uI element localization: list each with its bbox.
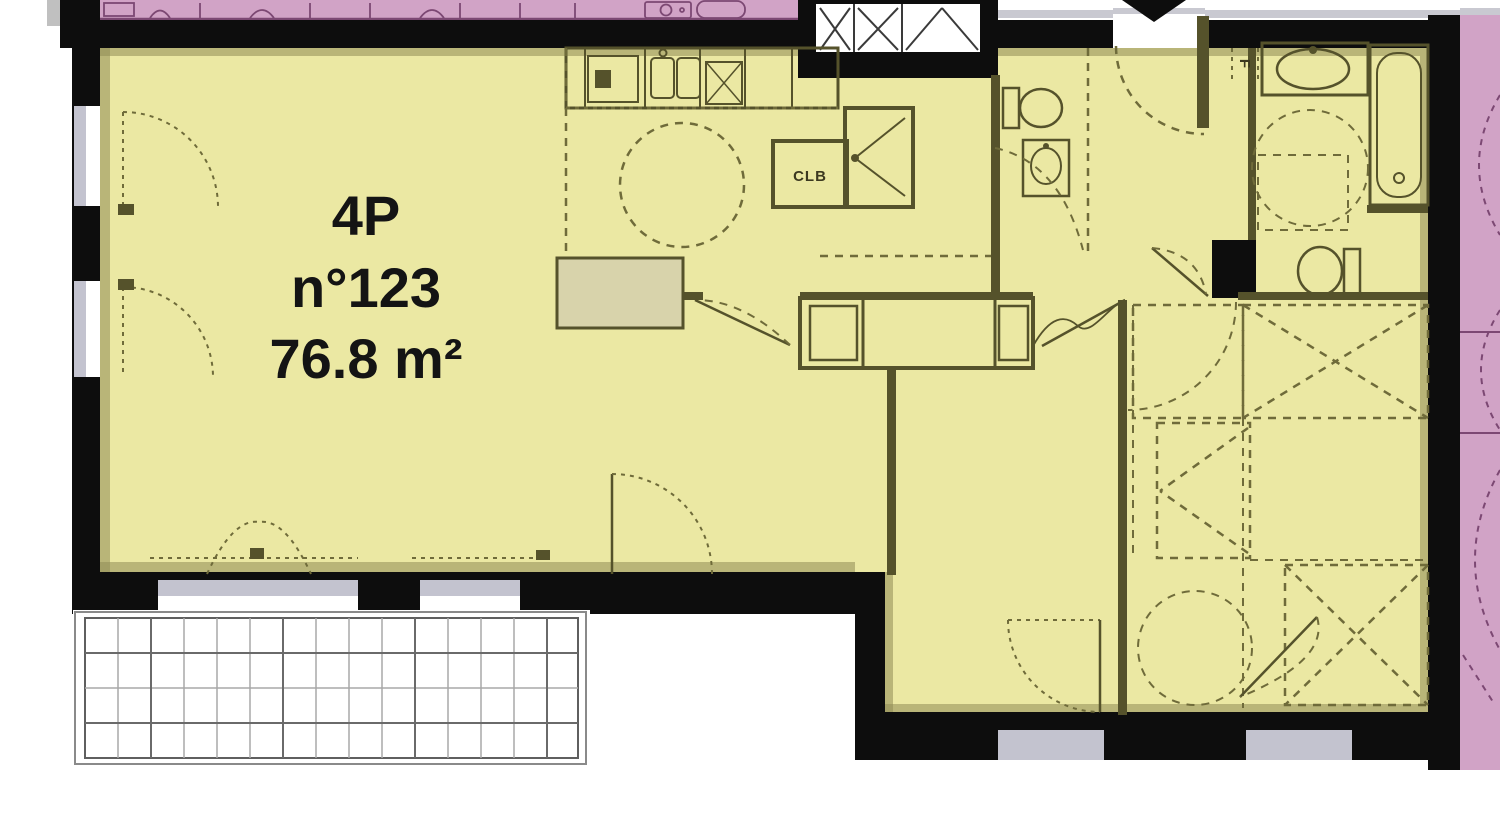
- entrance-door-leaf: [1197, 16, 1209, 128]
- wall-bedroom-mid: [887, 368, 896, 575]
- balcony: [73, 610, 590, 766]
- wall-top: [72, 20, 1460, 48]
- wall-wc: [991, 75, 1000, 300]
- unit-number-label: n°123: [291, 256, 441, 319]
- wall-bottom-bedrooms: [855, 712, 1460, 760]
- closet-clb-label: CLB: [793, 168, 827, 185]
- stairwell: [816, 4, 980, 52]
- facade-sill-strip: [997, 10, 1460, 18]
- wall-mid-band-right: [1238, 292, 1428, 300]
- floor-plan: CLB F: [0, 0, 1500, 822]
- neighbor-apartment-top: [88, 0, 798, 20]
- unit-type-label: 4P: [332, 184, 401, 247]
- wall-bathroom: [1248, 48, 1256, 240]
- neighbor-apartment-right: [1460, 15, 1500, 770]
- window-left-2: [74, 281, 100, 377]
- faucet-icon: [1309, 46, 1317, 54]
- wall-right: [1428, 15, 1460, 770]
- window-balcony-1: [158, 580, 358, 614]
- window-balcony-2: [420, 580, 520, 614]
- unit-area-label: 76.8 m²: [270, 327, 463, 390]
- wall-bedroom-right: [1118, 300, 1127, 715]
- floor-plan-page: CLB F: [0, 0, 1500, 822]
- window-bedroom-2: [1246, 730, 1352, 768]
- facade-fragment: [47, 0, 62, 26]
- bathroom-door-jamb: [1212, 240, 1256, 298]
- window-bedroom-1: [998, 730, 1104, 768]
- facade-sill-strip-right: [1460, 8, 1500, 15]
- appliance-label: F: [1236, 59, 1253, 69]
- counter-block: [557, 258, 683, 328]
- window-left-1: [74, 106, 100, 206]
